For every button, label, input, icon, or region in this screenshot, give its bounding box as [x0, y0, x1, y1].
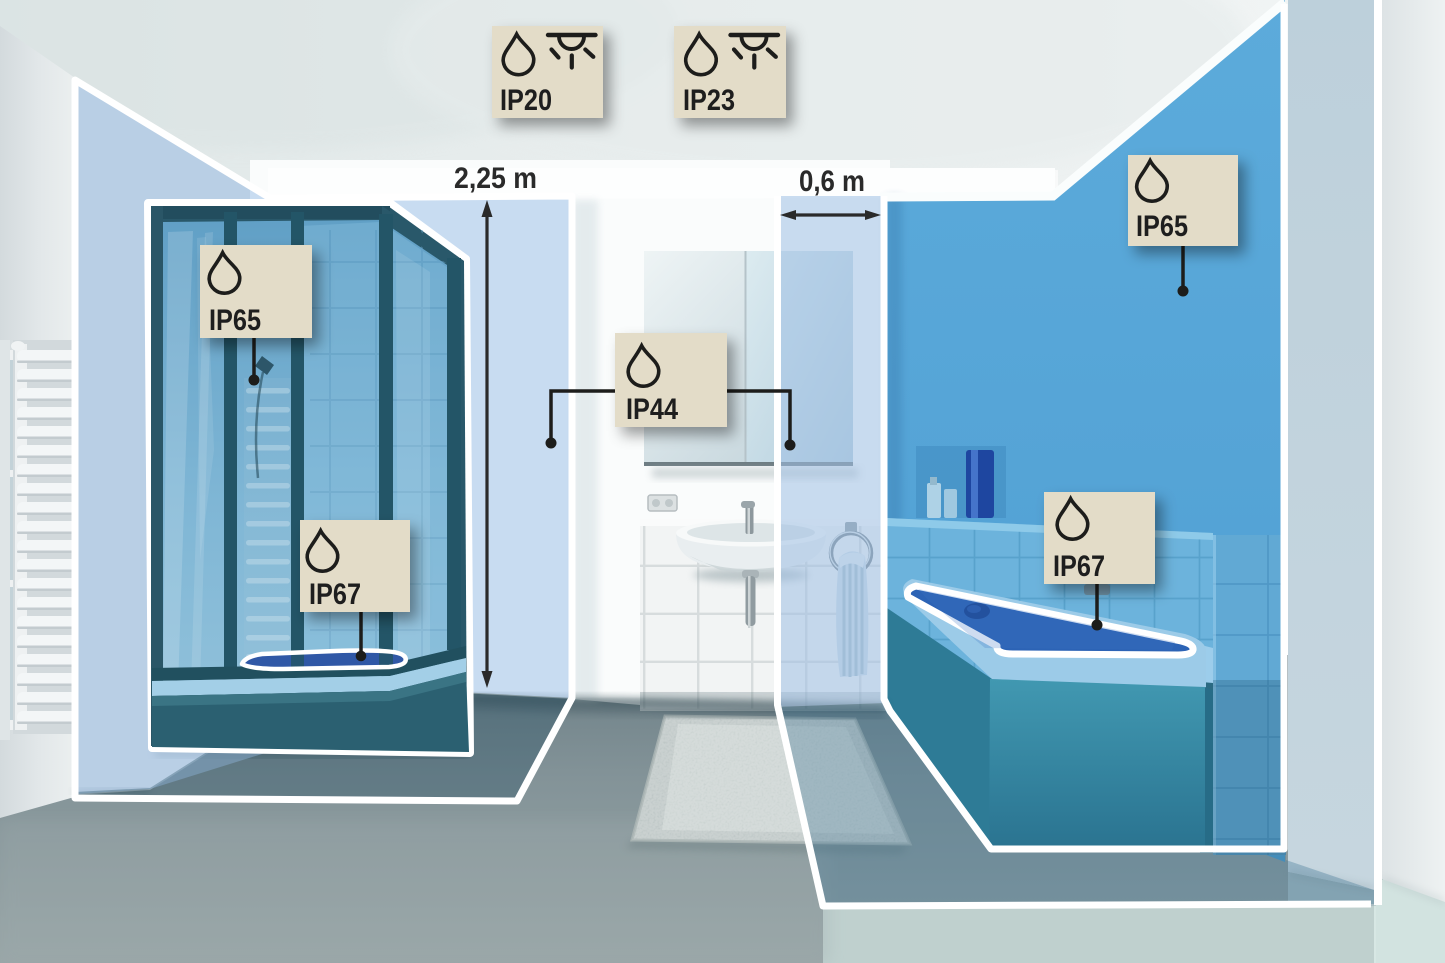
svg-text:IP44: IP44 [626, 393, 678, 426]
svg-text:IP67: IP67 [309, 578, 361, 611]
svg-text:0,6 m: 0,6 m [799, 165, 865, 198]
svg-text:IP65: IP65 [209, 304, 261, 337]
svg-text:IP20: IP20 [500, 84, 552, 117]
svg-text:IP23: IP23 [683, 84, 735, 117]
svg-text:IP65: IP65 [1136, 210, 1188, 243]
svg-text:IP67: IP67 [1053, 550, 1105, 583]
svg-text:2,25 m: 2,25 m [454, 162, 537, 195]
